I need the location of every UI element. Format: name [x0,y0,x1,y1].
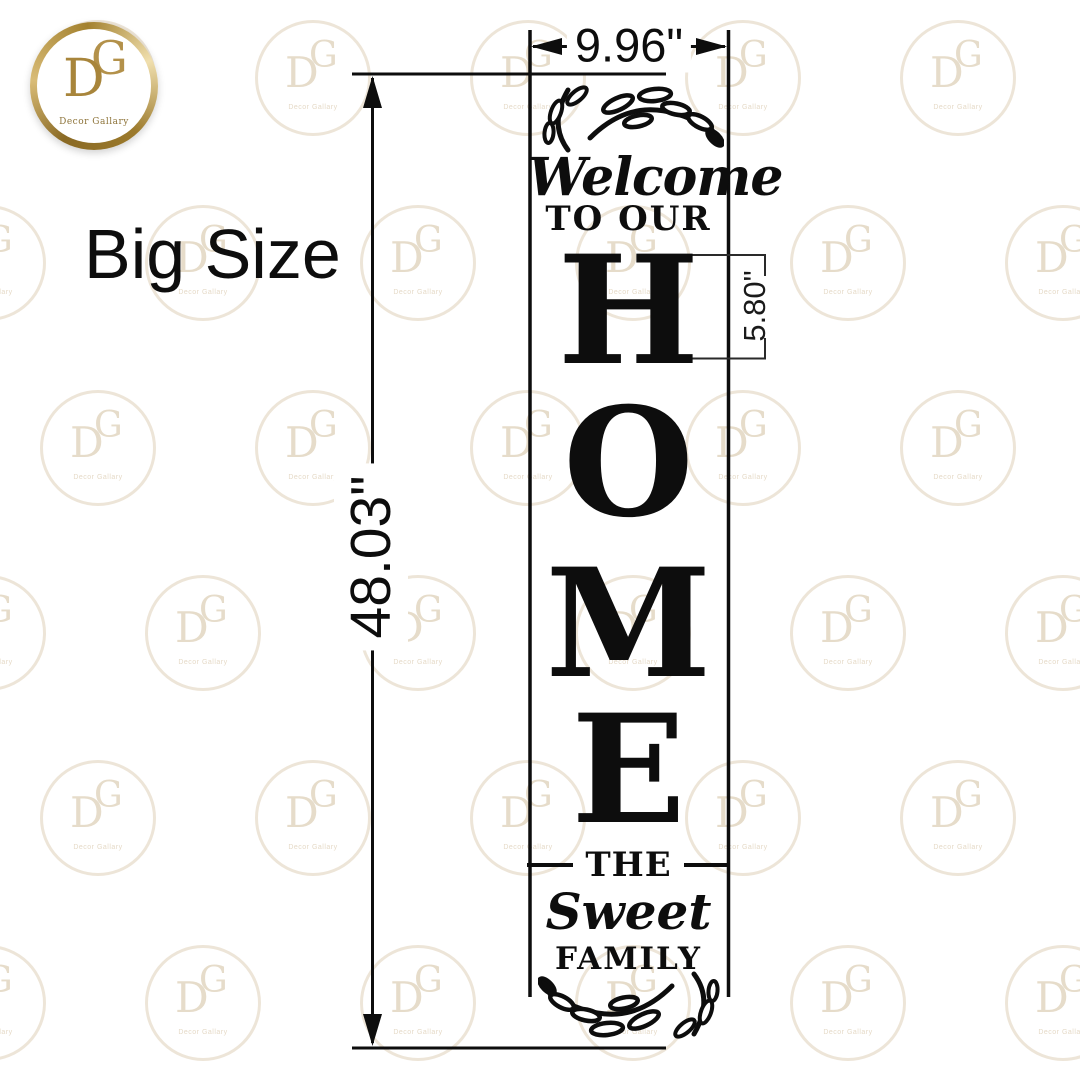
sign-divider-row: THE [528,848,729,882]
size-variant-label: Big Size [84,214,341,294]
sign-letter-e: E [528,695,729,845]
brand-caption: Decor Gallary [59,117,129,127]
sign-family-word: FAMILY [528,941,729,977]
letter-height-dimension-label: 5.80" [737,270,773,341]
height-arrow-down-icon [363,1014,382,1046]
sign-artwork: Welcome TO OUR H O M E THE Sweet FAMILY [528,0,729,1080]
divider-dash-left [527,863,573,867]
height-arrow-up-icon [363,76,382,108]
sign-letter-h: H [528,236,729,386]
brand-logo: G D Decor Gallary [30,22,158,150]
sign-letter-o: O [528,388,729,538]
brand-monogram: G D [57,45,131,109]
brand-logo-ring: G D Decor Gallary [37,29,151,143]
height-dimension-label: 48.03" [334,464,408,651]
sign-letter-m: M [528,549,729,699]
product-dimension-diagram: GDDecor GallaryGDDecor GallaryGDDecor Ga… [0,0,1080,1080]
sign-family-name: Sweet [528,882,729,941]
sign-divider-word: THE [585,848,671,882]
divider-dash-right [684,863,730,867]
brand-monogram-d: D [63,53,105,105]
